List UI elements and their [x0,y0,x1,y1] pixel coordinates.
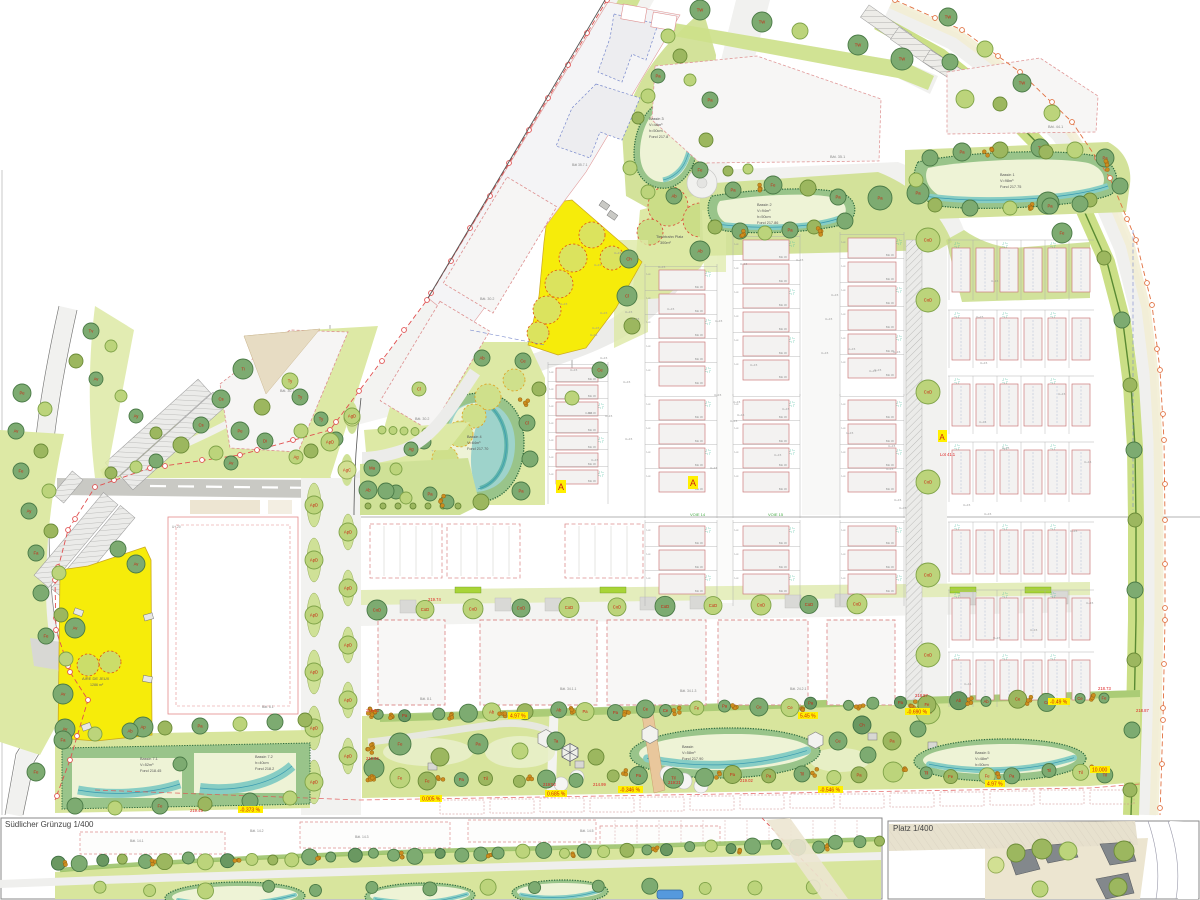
svg-text:U+15: U+15 [899,506,907,510]
svg-text:Fe: Fe [34,770,40,775]
svg-text:Bât. 44.1: Bât. 44.1 [1048,125,1063,129]
svg-text:U+15: U+15 [667,307,675,311]
svg-text:U+15: U+15 [1030,628,1038,632]
svg-text:Bât 30: Bât 30 [695,589,704,593]
svg-text:CoD: CoD [421,607,429,612]
svg-text:U+15: U+15 [831,293,839,297]
svg-text:CoD: CoD [853,601,861,606]
svg-text:U+15: U+15 [976,315,984,319]
svg-text:Lot: Lot [550,472,554,476]
svg-text:ApD: ApD [310,613,318,618]
svg-text:Bât 30: Bât 30 [695,463,704,467]
svg-text:ApD: ApD [344,530,352,535]
svg-text:Bât 30: Bât 30 [886,373,895,377]
svg-text:Fe: Fe [698,168,704,173]
svg-text:Lot: Lot [647,320,651,324]
svg-text:Ce: Ce [835,739,841,744]
svg-text:Pa: Pa [655,74,661,79]
svg-text:U+15: U+15 [1002,446,1010,450]
svg-text:Pa: Pa [427,492,433,497]
svg-text:CoD: CoD [805,602,813,607]
svg-text:Ta: Ta [554,739,559,744]
svg-text:Ag: Ag [293,455,299,460]
svg-text:Pa: Pa [636,773,642,778]
svg-text:Lot: Lot [735,426,739,430]
svg-text:Bât 30: Bât 30 [886,565,895,569]
svg-text:U+15: U+15 [591,458,599,462]
svg-text:Pa: Pa [1009,773,1015,778]
svg-text:A: A [690,478,696,488]
svg-text:Ap: Ap [140,725,146,730]
svg-text:Pa: Pa [835,195,841,200]
svg-text:Pa: Pa [959,150,965,155]
svg-text:Bassin: Bassin [682,745,693,749]
svg-text:Bât 30: Bât 30 [886,487,895,491]
svg-text:Pa: Pa [856,772,862,777]
svg-text:Fond 217.70: Fond 217.70 [467,447,488,451]
svg-text:Ab: Ab [983,699,989,704]
svg-text:U+15: U+15 [848,347,856,351]
svg-text:Bât 30: Bât 30 [886,439,895,443]
svg-text:U+15: U+15 [774,453,782,457]
svg-text:Pa: Pa [518,489,524,494]
svg-text:Lot: Lot [647,474,651,478]
svg-text:1286 m²: 1286 m² [90,683,104,687]
svg-text:U+15: U+15 [605,414,613,418]
svg-text:Bât. 30.2: Bât. 30.2 [415,417,429,421]
svg-text:U+15: U+15 [825,317,833,321]
svg-text:U+15: U+15 [1086,601,1094,605]
svg-text:AgC: AgC [343,468,351,473]
svg-text:U+ 20: U+ 20 [172,525,181,529]
svg-text:Fe: Fe [948,774,954,779]
svg-text:U+15: U+15 [658,265,666,269]
svg-text:5.45 %: 5.45 % [800,714,816,720]
svg-text:U+15: U+15 [590,333,598,337]
svg-text:218.87: 218.87 [1136,708,1149,713]
svg-text:TW: TW [899,57,906,62]
svg-text:Pa: Pa [766,773,772,778]
svg-text:Lot: Lot [842,552,846,556]
svg-text:U+15: U+15 [570,368,578,372]
svg-text:Til: Til [1078,770,1082,775]
svg-text:U+15: U+15 [625,437,633,441]
svg-text:U+15: U+15 [714,393,722,397]
svg-text:Bât 30: Bât 30 [695,309,704,313]
svg-text:AgD: AgD [348,414,356,419]
svg-text:ApD: ApD [344,698,352,703]
svg-text:Lot: Lot [842,528,846,532]
svg-text:Ab: Ab [671,194,677,199]
svg-text:U+15: U+15 [886,467,894,471]
svg-text:U+15: U+15 [1058,392,1066,396]
svg-text:U+15: U+15 [594,263,602,267]
svg-text:h=50cm: h=50cm [649,129,663,133]
svg-text:CoD: CoD [924,653,932,658]
svg-text:Fond 218.2: Fond 218.2 [255,767,274,771]
svg-text:Pa: Pa [459,777,465,782]
svg-text:Bât 30: Bât 30 [779,487,788,491]
svg-text:ApD: ApD [344,586,352,591]
svg-text:Pa: Pa [889,739,895,744]
svg-text:U+15: U+15 [893,350,901,354]
svg-text:ApD: ApD [344,643,352,648]
svg-text:Lot: Lot [550,404,554,408]
svg-text:CoD: CoD [924,480,932,485]
svg-text:V=48m³: V=48m³ [975,757,989,761]
svg-text:Bassin 7.1: Bassin 7.1 [140,757,158,761]
svg-text:Lot: Lot [647,272,651,276]
svg-text:Bât 30: Bât 30 [779,279,788,283]
svg-text:Lot: Lot [842,426,846,430]
svg-text:Ce: Ce [520,359,526,364]
svg-text:-0.373 %: -0.373 % [240,808,261,814]
svg-text:Lot: Lot [550,438,554,442]
svg-text:Lot: Lot [842,474,846,478]
svg-text:Bât 30: Bât 30 [886,253,895,257]
svg-text:CoD: CoD [565,605,573,610]
svg-text:Lot: Lot [647,450,651,454]
svg-text:Bât 30: Bât 30 [779,303,788,307]
svg-text:h=50cm: h=50cm [975,763,989,767]
svg-text:CoD: CoD [517,606,525,611]
svg-text:Lot: Lot [550,455,554,459]
svg-text:4.97 %: 4.97 % [510,714,526,720]
svg-text:ApD: ApD [326,440,334,445]
svg-text:Bât 30: Bât 30 [886,277,895,281]
svg-text:Bât. 35.1: Bât. 35.1 [830,155,845,159]
svg-text:Bât 35.7.1: Bât 35.7.1 [572,163,588,167]
svg-text:Bât. 14.5: Bât. 14.5 [580,829,594,833]
svg-text:Bât 30: Bât 30 [695,439,704,443]
svg-text:Bât. 8.1: Bât. 8.1 [262,705,274,709]
svg-text:Bassin 5: Bassin 5 [975,751,990,755]
svg-text:U+15: U+15 [740,262,748,266]
svg-text:218.87: 218.87 [915,693,928,698]
svg-text:h=40cm: h=40cm [255,761,269,765]
svg-text:Til: Til [1047,768,1051,773]
svg-text:U+15: U+15 [991,279,999,283]
svg-text:Ch: Ch [626,257,632,262]
svg-text:Lot: Lot [842,312,846,316]
svg-text:Südlicher Grünzug 1/400: Südlicher Grünzug 1/400 [5,820,94,829]
svg-text:Ag: Ag [408,447,414,452]
svg-text:Bassin 1: Bassin 1 [1000,173,1015,177]
svg-text:Pa: Pa [877,196,883,201]
svg-text:TW: TW [697,8,704,13]
svg-text:Fe: Fe [398,742,404,747]
svg-text:U+15: U+15 [963,503,971,507]
svg-text:ApD: ApD [344,754,352,759]
svg-text:Bât 30: Bât 30 [588,377,597,381]
svg-text:U+15: U+15 [1070,529,1078,533]
svg-text:Bât 30: Bât 30 [588,445,597,449]
svg-text:Lot: Lot [647,344,651,348]
svg-text:Fe: Fe [1060,231,1066,236]
svg-text:Bât 30: Bât 30 [779,439,788,443]
svg-text:TW: TW [1019,81,1026,86]
svg-text:218.73: 218.73 [1098,686,1111,691]
svg-text:Fe: Fe [771,183,777,188]
svg-text:Lot: Lot [647,426,651,430]
svg-text:U+15: U+15 [710,466,718,470]
svg-text:Cl: Cl [625,294,629,299]
svg-text:Pa: Pa [707,98,713,103]
svg-text:ApD: ApD [310,780,318,785]
svg-text:Bât 30: Bât 30 [886,301,895,305]
svg-text:Bât 30: Bât 30 [886,541,895,545]
svg-text:-0.690 %: -0.690 % [907,710,928,716]
svg-text:Ce: Ce [643,706,649,711]
svg-text:Fond 217.8: Fond 217.8 [649,135,668,139]
svg-text:Lot: Lot [842,264,846,268]
svg-text:Lot: Lot [842,576,846,580]
svg-text:-0.49 %: -0.49 % [1050,700,1068,706]
svg-text:U+15: U+15 [1084,460,1092,464]
svg-text:Ce: Ce [663,708,669,713]
svg-text:U+15: U+15 [585,411,593,415]
svg-text:AIRE DE JEUX: AIRE DE JEUX [82,676,110,681]
svg-text:Bât 30: Bât 30 [779,255,788,259]
svg-text:Bât 30: Bât 30 [779,327,788,331]
svg-text:Bât 30: Bât 30 [779,351,788,355]
svg-text:Ab: Ab [489,709,495,714]
svg-text:U+15: U+15 [730,419,738,423]
svg-text:Lot: Lot [842,360,846,364]
svg-text:219:21: 219:21 [668,780,681,785]
svg-text:Lot: Lot [842,336,846,340]
svg-text:U+15: U+15 [750,363,758,367]
svg-text:U+15: U+15 [979,420,987,424]
svg-text:Lot: Lot [647,402,651,406]
svg-text:Cs: Cs [218,397,223,402]
svg-text:Lot: Lot [735,338,739,342]
svg-text:Fe: Fe [397,775,403,780]
svg-text:U+15: U+15 [560,302,568,306]
svg-text:Pa: Pa [475,742,481,747]
svg-text:Bât 30: Bât 30 [588,479,597,483]
svg-text:Pe: Pe [237,429,243,434]
svg-text:Bât 30: Bât 30 [695,357,704,361]
svg-text:U+15: U+15 [980,361,988,365]
svg-text:Cs: Cs [198,423,203,428]
svg-text:Pa: Pa [915,191,921,196]
svg-text:V=52m³: V=52m³ [140,763,154,767]
svg-text:Bassin 3: Bassin 3 [649,117,664,121]
svg-text:Ce: Ce [597,368,603,373]
svg-text:Pe: Pe [19,391,25,396]
svg-text:U+15: U+15 [632,317,640,321]
svg-text:Bât 30: Bât 30 [695,565,704,569]
svg-text:TW: TW [759,20,766,25]
svg-text:Ab: Ab [365,488,371,493]
svg-text:Cl: Cl [525,421,529,426]
svg-text:Bât 30: Bât 30 [695,541,704,545]
svg-text:CoD: CoD [924,238,932,243]
svg-text:CoD: CoD [757,603,765,608]
svg-text:Bât 30: Bât 30 [886,415,895,419]
svg-text:Lot: Lot [735,290,739,294]
svg-text:CoD: CoD [661,604,669,609]
svg-text:Bât 30: Bât 30 [695,415,704,419]
svg-text:Bât. 30.1: Bât. 30.1 [280,389,294,393]
svg-text:TW: TW [855,43,862,48]
svg-text:Fond 217.75: Fond 217.75 [1000,185,1021,189]
svg-text:Lot: Lot [735,552,739,556]
svg-text:Pa: Pa [197,724,203,729]
svg-text:U+15: U+15 [782,407,790,411]
svg-text:Fe: Fe [1102,696,1108,701]
svg-text:Bât 30: Bât 30 [779,589,788,593]
svg-text:CoD: CoD [373,608,381,613]
svg-text:Lot: Lot [550,421,554,425]
svg-text:Bât. 14.3: Bât. 14.3 [355,835,369,839]
svg-text:Pa: Pa [898,700,904,705]
svg-text:Ab: Ab [127,729,133,734]
svg-text:Fe: Fe [425,779,431,784]
svg-text:U+15: U+15 [737,413,745,417]
svg-text:U+15: U+15 [888,444,896,448]
svg-text:U+15: U+15 [894,498,902,502]
svg-text:Ab: Ab [479,356,485,361]
svg-text:U+15: U+15 [984,512,992,516]
svg-text:Ce: Ce [756,705,762,710]
svg-text:Lot: Lot [735,474,739,478]
svg-text:Pa: Pa [730,772,736,777]
svg-text:Bât 30: Bât 30 [695,285,704,289]
svg-text:V=46m³: V=46m³ [649,123,663,127]
svg-text:Lot: Lot [550,387,554,391]
svg-text:Bât. 24.2.1: Bât. 24.2.1 [790,687,807,691]
svg-text:Bassin 2: Bassin 2 [757,203,772,207]
svg-text:219.66: 219.66 [366,756,379,761]
svg-text:Platz 1/400: Platz 1/400 [893,824,934,833]
svg-text:Ce: Ce [1077,696,1083,701]
svg-text:Lot: Lot [842,288,846,292]
svg-text:U+15: U+15 [715,319,723,323]
svg-text:Lot: Lot [647,576,651,580]
svg-text:Lot: Lot [735,314,739,318]
svg-text:Lot: Lot [647,368,651,372]
svg-text:U+15: U+15 [964,682,972,686]
svg-text:Pa: Pa [722,704,728,709]
svg-text:Fa: Fa [34,551,40,556]
svg-text:Lot 41.1: Lot 41.1 [940,452,956,457]
svg-text:Bât 30: Bât 30 [779,415,788,419]
svg-text:U+15: U+15 [592,326,600,330]
svg-text:Fa: Fa [61,738,67,743]
svg-text:VOIE 15: VOIE 15 [768,512,784,517]
svg-text:V=94m³: V=94m³ [757,209,771,213]
svg-text:Pa: Pa [787,228,793,233]
svg-text:Ab: Ab [956,698,962,703]
svg-text:Fe: Fe [985,773,991,778]
svg-text:V=64m³: V=64m³ [467,441,481,445]
svg-text:CoD: CoD [469,606,477,611]
svg-text:Lot: Lot [735,576,739,580]
svg-text:Di: Di [263,439,267,444]
svg-text:Bât. 8.1: Bât. 8.1 [420,697,432,701]
svg-text:Bât. 34.1.3: Bât. 34.1.3 [680,689,697,693]
svg-text:Bât 30: Bât 30 [695,333,704,337]
svg-text:Bassin 4: Bassin 4 [467,435,482,439]
svg-text:ApD: ApD [310,670,318,675]
svg-text:U+15: U+15 [600,356,608,360]
svg-text:U+15: U+15 [625,310,633,314]
svg-text:Bât. 34.1.1: Bât. 34.1.1 [560,687,577,691]
svg-text:VOIE 14: VOIE 14 [690,512,706,517]
svg-text:Fe: Fe [694,706,700,711]
svg-text:219.74: 219.74 [428,597,441,602]
svg-text:Ch: Ch [859,723,865,728]
svg-text:Pa: Pa [1047,204,1053,209]
svg-text:U+15: U+15 [869,369,877,373]
svg-text:Lot: Lot [647,528,651,532]
svg-text:Fond 218.45: Fond 218.45 [140,769,161,773]
svg-text:Lot: Lot [735,242,739,246]
svg-text:ApD: ApD [310,558,318,563]
svg-text:Bassin 7.2: Bassin 7.2 [255,755,273,759]
svg-text:Fe: Fe [158,804,164,809]
svg-text:Lot: Lot [735,528,739,532]
svg-text:Bât 30: Bât 30 [886,325,895,329]
svg-text:Lot: Lot [842,450,846,454]
svg-text:Bât 30: Bât 30 [779,463,788,467]
svg-text:Lot: Lot [550,370,554,374]
svg-text:Pa: Pa [613,710,619,715]
svg-text:Lot: Lot [842,402,846,406]
svg-text:U+15: U+15 [600,311,608,315]
svg-text:Bât 30: Bât 30 [886,589,895,593]
svg-text:Bât 30: Bât 30 [779,375,788,379]
svg-text:Bât 30: Bât 30 [779,565,788,569]
svg-text:CoD: CoD [924,298,932,303]
svg-text:Fe: Fe [44,634,50,639]
svg-text:U+15: U+15 [733,400,741,404]
svg-text:Fe: Fe [19,469,25,474]
svg-text:214.99: 214.99 [593,782,606,787]
svg-text:Ab: Ab [556,707,562,712]
svg-text:Pa: Pa [808,701,814,706]
svg-text:219:53: 219:53 [543,782,556,787]
svg-text:0.005 %: 0.005 % [422,797,441,803]
svg-text:Pa: Pa [730,188,736,193]
svg-text:Bât 30: Bât 30 [588,394,597,398]
svg-text:Bât 30: Bât 30 [588,428,597,432]
svg-text:Pa: Pa [402,713,408,718]
svg-text:Lot: Lot [647,552,651,556]
svg-text:Lot: Lot [842,240,846,244]
svg-text:TW: TW [945,15,952,20]
svg-text:CoD: CoD [924,573,932,578]
svg-text:Fe: Fe [924,702,930,707]
svg-text:4.97 %: 4.97 % [987,782,1003,788]
svg-text:0.685 %: 0.685 % [547,792,566,798]
svg-text:Lot: Lot [735,266,739,270]
svg-text:Fond 217.86: Fond 217.86 [757,221,778,225]
svg-text:A: A [558,482,564,492]
svg-text:Til: Til [800,771,804,776]
svg-text:CoD: CoD [924,390,932,395]
svg-text:CoD: CoD [709,603,717,608]
svg-text:Ma: Ma [369,466,375,471]
svg-text:CoD: CoD [613,604,621,609]
svg-text:A: A [939,433,945,442]
svg-text:Bât. 14.1: Bât. 14.1 [130,839,144,843]
svg-text:ApD: ApD [310,726,318,731]
svg-text:Pa: Pa [582,709,588,714]
svg-text:U+15: U+15 [796,258,804,262]
